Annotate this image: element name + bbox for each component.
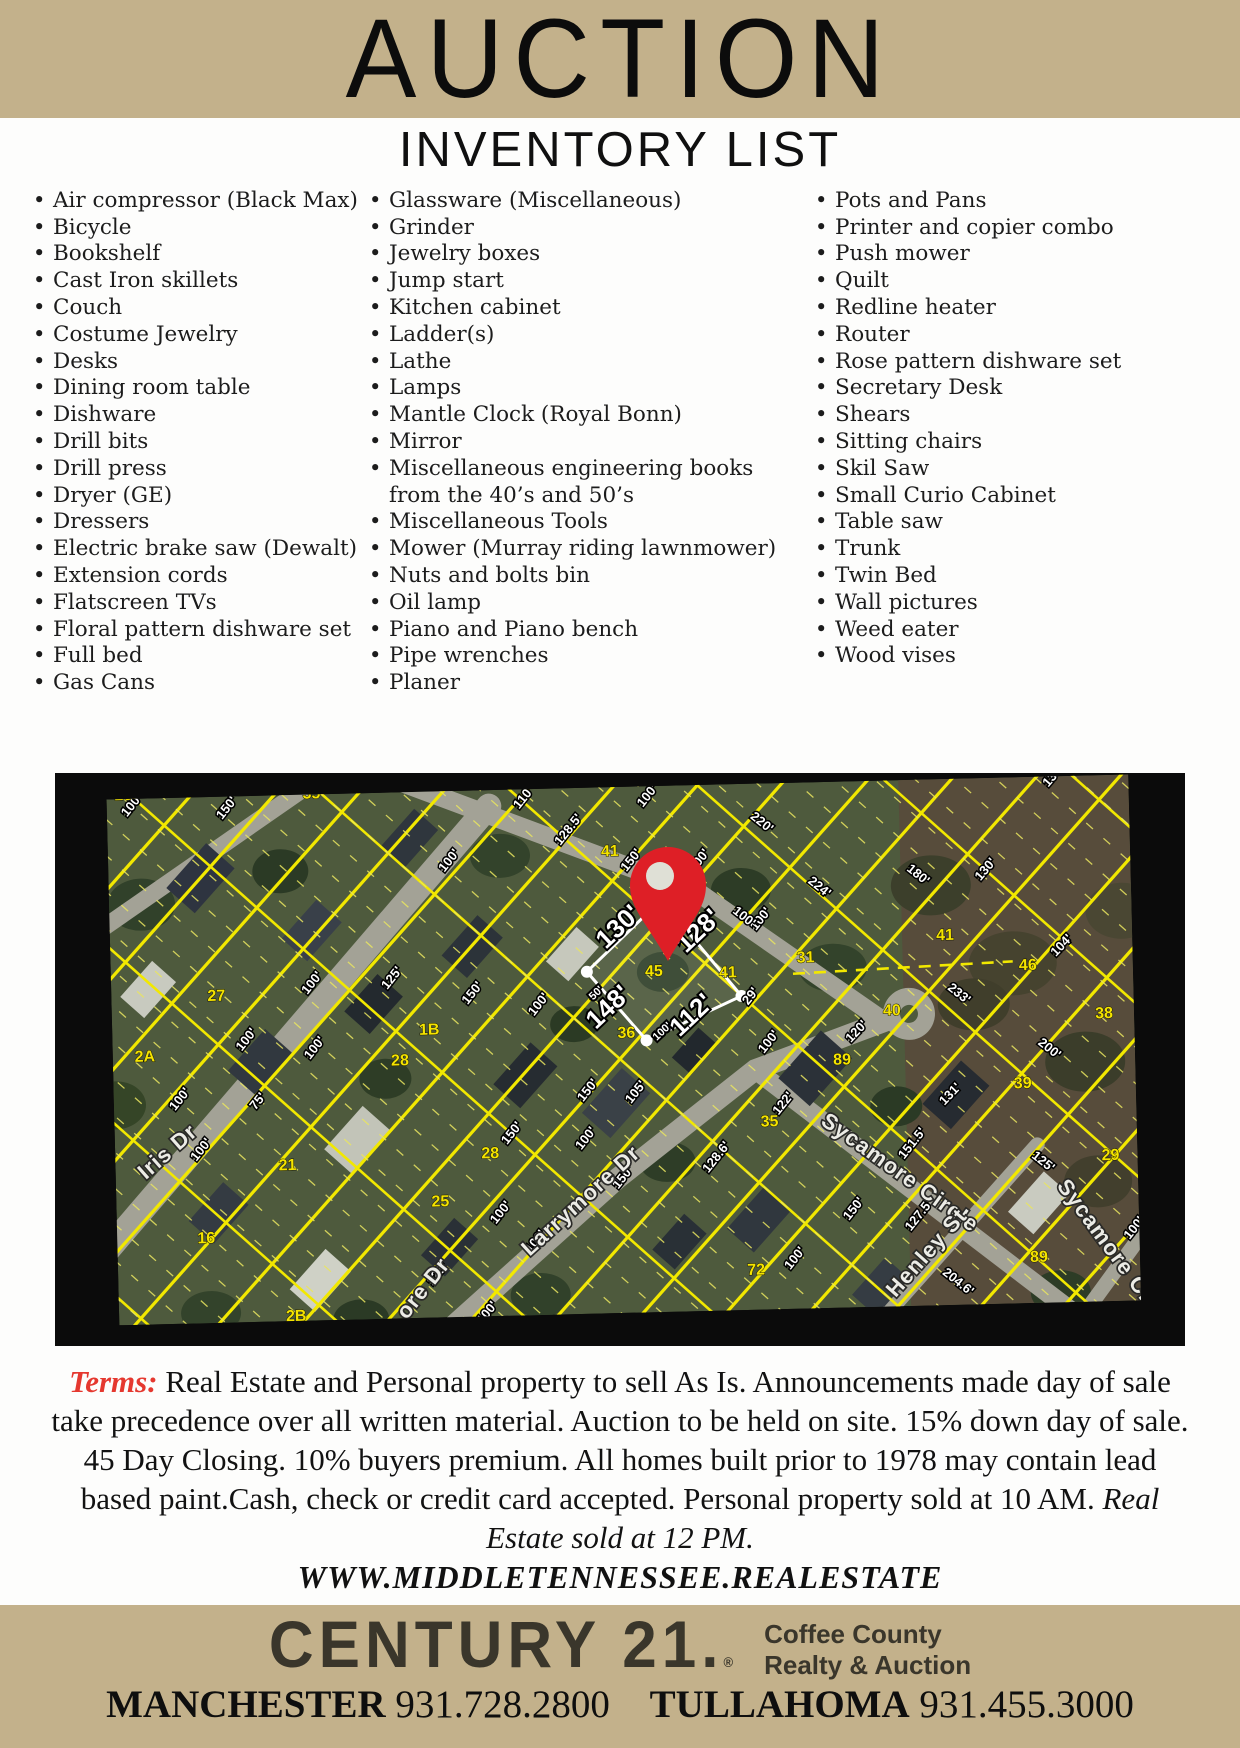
inventory-columns: Air compressor (Black Max)BicycleBookshe… [0,188,1240,697]
footer-band: CENTURY 21.® Coffee County Realty & Auct… [0,1605,1240,1748]
inventory-item: Skil Saw [808,456,1208,483]
lotnum-label: 89 [833,1051,851,1068]
office2-name: TULLAHOMA [650,1683,910,1726]
inventory-item: Dressers [26,509,362,536]
office2-phone: 931.455.3000 [919,1683,1134,1726]
inventory-item: Router [808,322,1208,349]
inventory-item: Desks [26,349,362,376]
lotnum-label: 1B [419,1021,440,1038]
inventory-item: Couch [26,295,362,322]
auction-title: AUCTION [346,3,895,115]
inventory-item: Pipe wrenches [362,643,789,670]
inventory-item: Mantle Clock (Royal Bonn) [362,402,789,429]
inventory-item: Air compressor (Black Max) [26,188,362,215]
inventory-item: Printer and copier combo [808,215,1208,242]
lotnum-label: 25 [431,1193,449,1210]
lotnum-label: 28 [481,1145,499,1162]
inventory-column-2: Glassware (Miscellaneous)GrinderJewelry … [362,188,808,697]
lotnum-label: 27 [207,988,225,1005]
inventory-item: Mirror [362,429,789,456]
inventory-item: Trunk [808,536,1208,563]
lotnum-label: 2A [134,1048,155,1066]
inventory-item: Twin Bed [808,563,1208,590]
hly-label: 45 [645,963,663,980]
inventory-item: Small Curio Cabinet [808,483,1208,510]
inventory-item: Wood vises [808,643,1208,670]
inventory-item: Gas Cans [26,670,362,697]
website-link[interactable]: WWW.MIDDLETENNESSEE.REALESTATE [45,1559,1195,1596]
lotnum-label: 46 [1019,957,1037,974]
lotnum-label: 28 [391,1052,409,1069]
lotnum-label: 41 [719,964,737,981]
century21-logo: CENTURY 21.® [269,1613,738,1679]
inventory-item: Push mower [808,241,1208,268]
inventory-item: Redline heater [808,295,1208,322]
lotnum-label: 29 [1101,1147,1119,1164]
inventory-item: Grinder [362,215,789,242]
inventory-item: Quilt [808,268,1208,295]
inventory-item: Electric brake saw (Dewalt) [26,536,362,563]
inventory-item: Extension cords [26,563,362,590]
lotnum-label: 89 [1030,1249,1048,1266]
terms-label: Terms: [69,1364,157,1399]
inventory-item: Miscellaneous Tools [362,509,789,536]
inventory-item: Full bed [26,643,362,670]
inventory-item: Nuts and bolts bin [362,563,789,590]
terms-body: Real Estate and Personal property to sel… [51,1364,1188,1516]
inventory-item: Flatscreen TVs [26,590,362,617]
inventory-item: Sitting chairs [808,429,1208,456]
inventory-item: Piano and Piano bench [362,617,789,644]
inventory-item: Miscellaneous engineering books from the… [362,456,789,510]
inventory-item: Costume Jewelry [26,322,362,349]
inventory-item: Glassware (Miscellaneous) [362,188,789,215]
inventory-item: Pots and Pans [808,188,1208,215]
office1-name: MANCHESTER [106,1683,386,1726]
lotnum-label: 36 [617,1025,635,1042]
inventory-item: Drill press [26,456,362,483]
aerial-parcel-map: 100'150'100'110'128.5'100'150'100'100'22… [55,773,1185,1346]
inventory-item: Secretary Desk [808,375,1208,402]
inventory-item: Drill bits [26,429,362,456]
inventory-item: Shears [808,402,1208,429]
terms-paragraph: Terms: Real Estate and Personal property… [45,1362,1195,1557]
lotnum-label: 72 [747,1262,765,1279]
inventory-column-3: Pots and PansPrinter and copier comboPus… [808,188,1208,697]
inventory-item: Cast Iron skillets [26,268,362,295]
inventory-item: Kitchen cabinet [362,295,789,322]
tagline-line2: Realty & Auction [764,1650,971,1681]
inventory-item: Weed eater [808,617,1208,644]
tagline-line1: Coffee County [764,1619,971,1650]
lotnum-label: 21 [278,1157,296,1174]
inventory-column-1: Air compressor (Black Max)BicycleBookshe… [26,188,362,697]
inventory-item: Planer [362,670,789,697]
office-contacts: MANCHESTER 931.728.2800 TULLAHOMA 931.45… [0,1682,1240,1727]
inventory-item: Mower (Murray riding lawnmower) [362,536,789,563]
inventory-item: Wall pictures [808,590,1208,617]
lotnum-label: 41 [601,843,619,860]
lotnum-label: 31 [796,949,814,966]
lotnum-label: 39 [1014,1075,1032,1092]
inventory-item: Rose pattern dishware set [808,349,1208,376]
brokerage-tagline: Coffee County Realty & Auction [764,1615,971,1681]
inventory-item: Oil lamp [362,590,789,617]
office1-phone: 931.728.2800 [395,1683,610,1726]
lotnum-label: 40 [883,1002,901,1019]
header-band: AUCTION [0,0,1240,118]
inventory-item: Floral pattern dishware set [26,617,362,644]
inventory-item: Dishware [26,402,362,429]
inventory-item: Bicycle [26,215,362,242]
inventory-item: Lathe [362,349,789,376]
inventory-item: Dryer (GE) [26,483,362,510]
inventory-item: Dining room table [26,375,362,402]
lotnum-label: 41 [936,927,954,944]
lotnum-label: 16 [197,1230,215,1247]
inventory-item: Jump start [362,268,789,295]
inventory-item: Bookshelf [26,241,362,268]
inventory-subtitle: INVENTORY LIST [0,124,1240,178]
inventory-item: Ladder(s) [362,322,789,349]
lotnum-label: 35 [760,1113,778,1130]
lotnum-label: 38 [1095,1005,1113,1022]
inventory-item: Lamps [362,375,789,402]
registered-mark: ® [724,1654,739,1670]
inventory-item: Jewelry boxes [362,241,789,268]
inventory-item: Table saw [808,509,1208,536]
